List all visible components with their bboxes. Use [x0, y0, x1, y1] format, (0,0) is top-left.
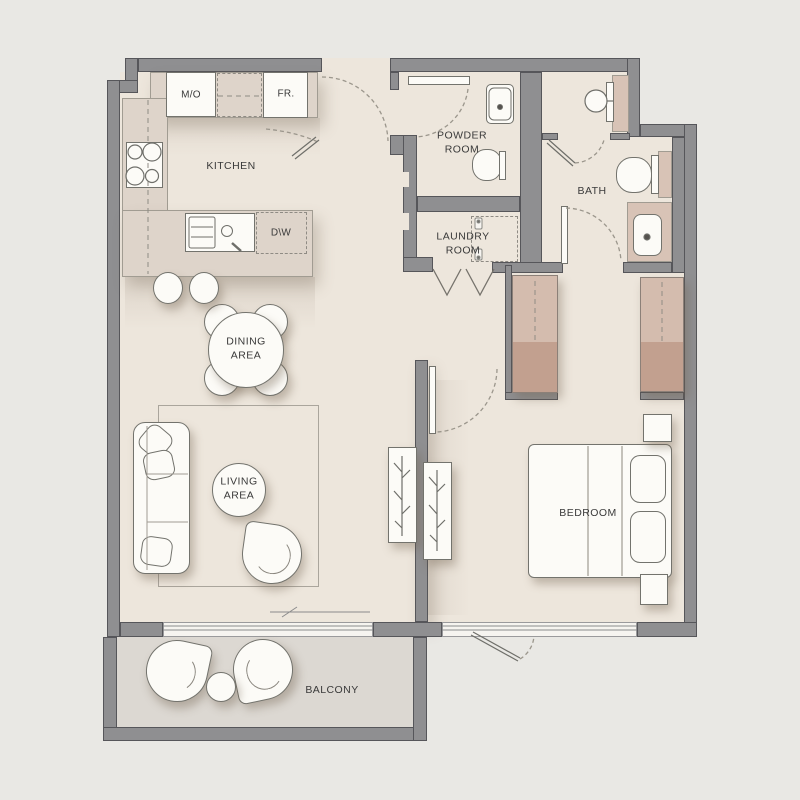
bed-pillow — [630, 455, 666, 503]
kitchen-sink — [185, 213, 255, 252]
bath-toilet-backsplash — [658, 151, 672, 198]
wall-balcony-left — [103, 637, 117, 741]
label-bath: BATH — [577, 185, 606, 199]
bath-door-leaf — [561, 206, 568, 264]
label-balcony: BALCONY — [305, 684, 358, 698]
planter-right — [423, 462, 452, 560]
wall-left — [107, 80, 120, 637]
label-dining: DINING AREA — [226, 335, 265, 362]
wall-hall — [403, 135, 417, 272]
label-kitchen: KITCHEN — [206, 160, 255, 174]
window-bedroom — [442, 622, 637, 637]
bar-stool — [189, 272, 219, 304]
bedroom-door-leaf — [429, 366, 436, 434]
balcony-table — [206, 672, 236, 702]
wall-balcony-bottom — [103, 727, 427, 741]
wall-balcony-right — [413, 637, 427, 741]
wall-niche — [403, 172, 409, 187]
label-bedroom: BEDROOM — [559, 507, 616, 521]
wall-wardrobe-cap-left — [505, 392, 558, 400]
wall-entry-stub — [390, 72, 399, 90]
bath-vanity-sink — [633, 214, 662, 256]
wall-bath-foot — [623, 262, 672, 273]
bath-shower-bench — [612, 75, 629, 132]
nightstand — [640, 574, 668, 605]
label-dishwasher: D\W — [271, 227, 291, 240]
bath-toilet-tank — [651, 155, 659, 194]
label-living: LIVING AREA — [220, 475, 257, 502]
wardrobe-left-upper — [513, 276, 557, 344]
wall-laundry-foot — [492, 262, 563, 273]
nightstand — [643, 414, 672, 442]
wall-top-kitchen — [138, 58, 322, 72]
label-microwave-oven: M/O — [181, 89, 201, 102]
sofa-pillow — [139, 535, 174, 568]
wall-powder-bottom — [417, 196, 520, 212]
balcony-door-arc — [520, 636, 534, 659]
wall-wardrobe-cap-right — [640, 392, 684, 400]
exterior-notch — [640, 56, 700, 124]
wall-right — [684, 124, 697, 637]
bed-pillow — [630, 511, 666, 563]
wall-bottom-mid — [373, 622, 442, 637]
wall-bottom-right — [637, 622, 697, 637]
balcony-chair-seat — [242, 648, 285, 692]
floor-plan: KITCHEN POWDER ROOM BATH LAUNDRY ROOM DI… — [0, 0, 800, 800]
label-powder: POWDER ROOM — [437, 129, 487, 156]
wall-bath-divider — [542, 133, 558, 140]
wardrobe-right — [640, 277, 684, 392]
wall-wardrobe-side — [505, 265, 512, 400]
label-fridge: FR. — [277, 88, 294, 101]
wardrobe-right-upper — [641, 278, 683, 344]
wall-powder-bath — [520, 72, 542, 273]
bath-toilet-bowl — [616, 157, 652, 193]
bath-shower-bar — [606, 82, 614, 122]
bar-stool — [153, 272, 183, 304]
wardrobe-right-lower — [641, 342, 683, 391]
wardrobe-left-lower — [513, 342, 557, 392]
wall-top-right — [390, 58, 640, 72]
powder-door-leaf — [408, 76, 470, 85]
wall-hall-foot — [403, 257, 433, 272]
label-laundry: LAUNDRY ROOM — [436, 230, 489, 257]
wall-bath-divider — [610, 133, 630, 140]
wall-niche — [403, 213, 409, 230]
entry-opening-floor — [322, 58, 390, 72]
powder-toilet-tank — [499, 151, 506, 180]
cabinet-dashed — [217, 73, 262, 117]
armchair-seat — [252, 534, 293, 576]
balcony-chair-seat — [155, 650, 199, 695]
wardrobe-left — [512, 275, 558, 393]
stove — [126, 142, 163, 188]
window-living — [163, 622, 373, 637]
powder-vanity — [486, 84, 514, 124]
wall-bottom-living-pier — [120, 622, 163, 637]
planter-left — [388, 447, 417, 543]
